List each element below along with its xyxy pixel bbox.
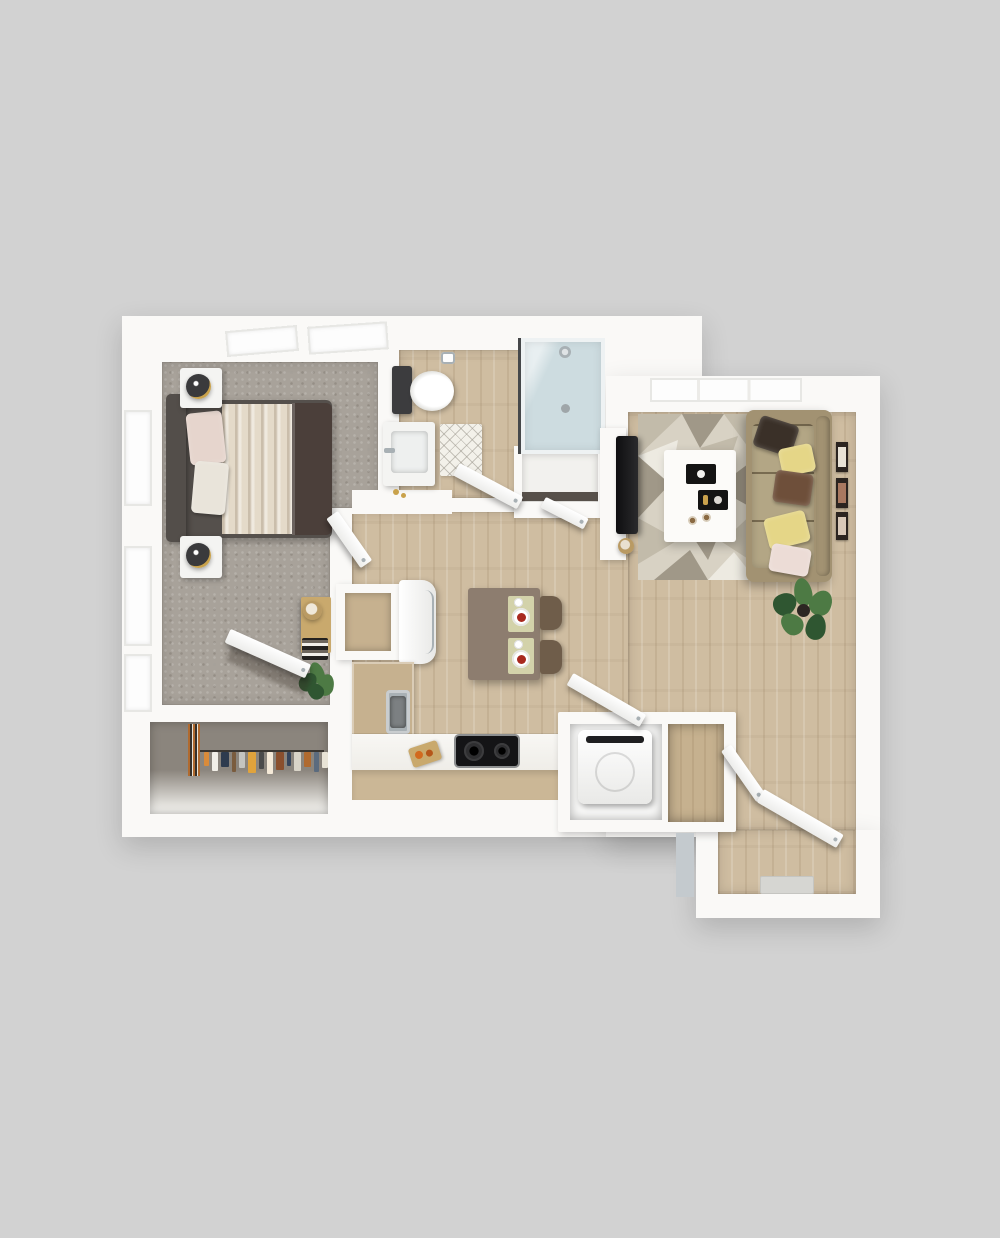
laundry-closet: [558, 712, 736, 832]
clothes-item: [232, 752, 237, 772]
bedroom-window-1: [124, 410, 152, 506]
dining-chair-1: [540, 596, 562, 630]
headboard: [166, 394, 186, 542]
magazine-rack: [302, 638, 328, 660]
entry-wall-face: [676, 833, 694, 897]
closet-floor: [150, 722, 328, 814]
linen-closet-shelf: [522, 492, 598, 501]
bed-pillow-1: [185, 410, 226, 465]
refrigerator-handle: [425, 590, 434, 654]
clothes-item: [322, 752, 328, 768]
living-room-window: [650, 378, 802, 402]
vanity-knob-1: [393, 489, 399, 495]
toilet-bowl: [410, 371, 454, 411]
toilet-tank: [392, 366, 412, 414]
clothes-item: [287, 752, 292, 766]
vanity: [383, 422, 435, 486]
place-mat-2: [508, 638, 534, 674]
washer: [578, 730, 652, 804]
bed-duvet: [292, 403, 332, 535]
vanity-knob-2: [401, 493, 406, 498]
clothes-item: [314, 752, 319, 772]
shower-drain: [561, 404, 570, 413]
pantry-interior: [345, 593, 391, 651]
cooktop-burner-right: [494, 743, 510, 759]
kitchen-counter-front: [352, 770, 570, 800]
bedroom-skylight-2: [307, 321, 389, 355]
desk-stool: [303, 601, 322, 620]
vanity-faucet: [384, 448, 395, 453]
coat-closet-niche: [668, 724, 724, 822]
bed-blanket: [222, 404, 294, 534]
refrigerator: [399, 580, 436, 664]
coffee-table-tray-2: [698, 490, 728, 510]
dining-chair-2: [540, 640, 562, 674]
vanity-basin: [391, 431, 428, 473]
clothes-side-stack: [188, 724, 200, 776]
clothes-item: [259, 752, 264, 769]
sofa-pillow-brown: [772, 470, 814, 507]
bedroom-window-2: [124, 546, 152, 646]
coffee-table-cup-1: [688, 516, 697, 525]
clothes-item: [267, 752, 273, 774]
tv: [616, 436, 638, 534]
clothes-item: [276, 752, 284, 770]
nightstand-top-lamp: [186, 374, 211, 399]
wall-art-1: [836, 442, 848, 472]
clothes-item: [212, 752, 218, 771]
wall-art-3: [836, 512, 848, 540]
nightstand-bottom-lamp: [186, 543, 211, 568]
kitchen-sink: [386, 690, 410, 734]
clothes-item: [221, 752, 229, 767]
coffee-table-tray-1: [686, 464, 716, 484]
living-plant: [772, 578, 834, 648]
tv-stool: [618, 538, 634, 554]
sofa-back: [816, 416, 830, 576]
cooktop: [456, 736, 518, 766]
wall-art-2: [836, 478, 848, 508]
clothes-item: [294, 752, 300, 771]
bedroom-window-3: [124, 654, 152, 712]
clothes-item: [204, 752, 209, 766]
entry-mat: [760, 876, 814, 894]
coffee-table: [664, 450, 736, 542]
cooktop-burner-left: [464, 741, 484, 761]
towel-ring: [441, 352, 455, 364]
clothes-item: [239, 752, 245, 768]
pantry-cabinet: [336, 584, 400, 660]
shower-head: [559, 346, 571, 358]
clothes-item: [304, 752, 312, 767]
shower: [518, 338, 605, 454]
coffee-table-cup-2: [702, 513, 711, 522]
bed-pillow-2: [191, 461, 229, 516]
clothes-item: [248, 752, 256, 773]
clothes-rack: [204, 752, 328, 778]
place-mat-1: [508, 596, 534, 632]
kitchen-sink-basin: [390, 696, 406, 728]
floor-plan-canvas: [0, 0, 1000, 1238]
